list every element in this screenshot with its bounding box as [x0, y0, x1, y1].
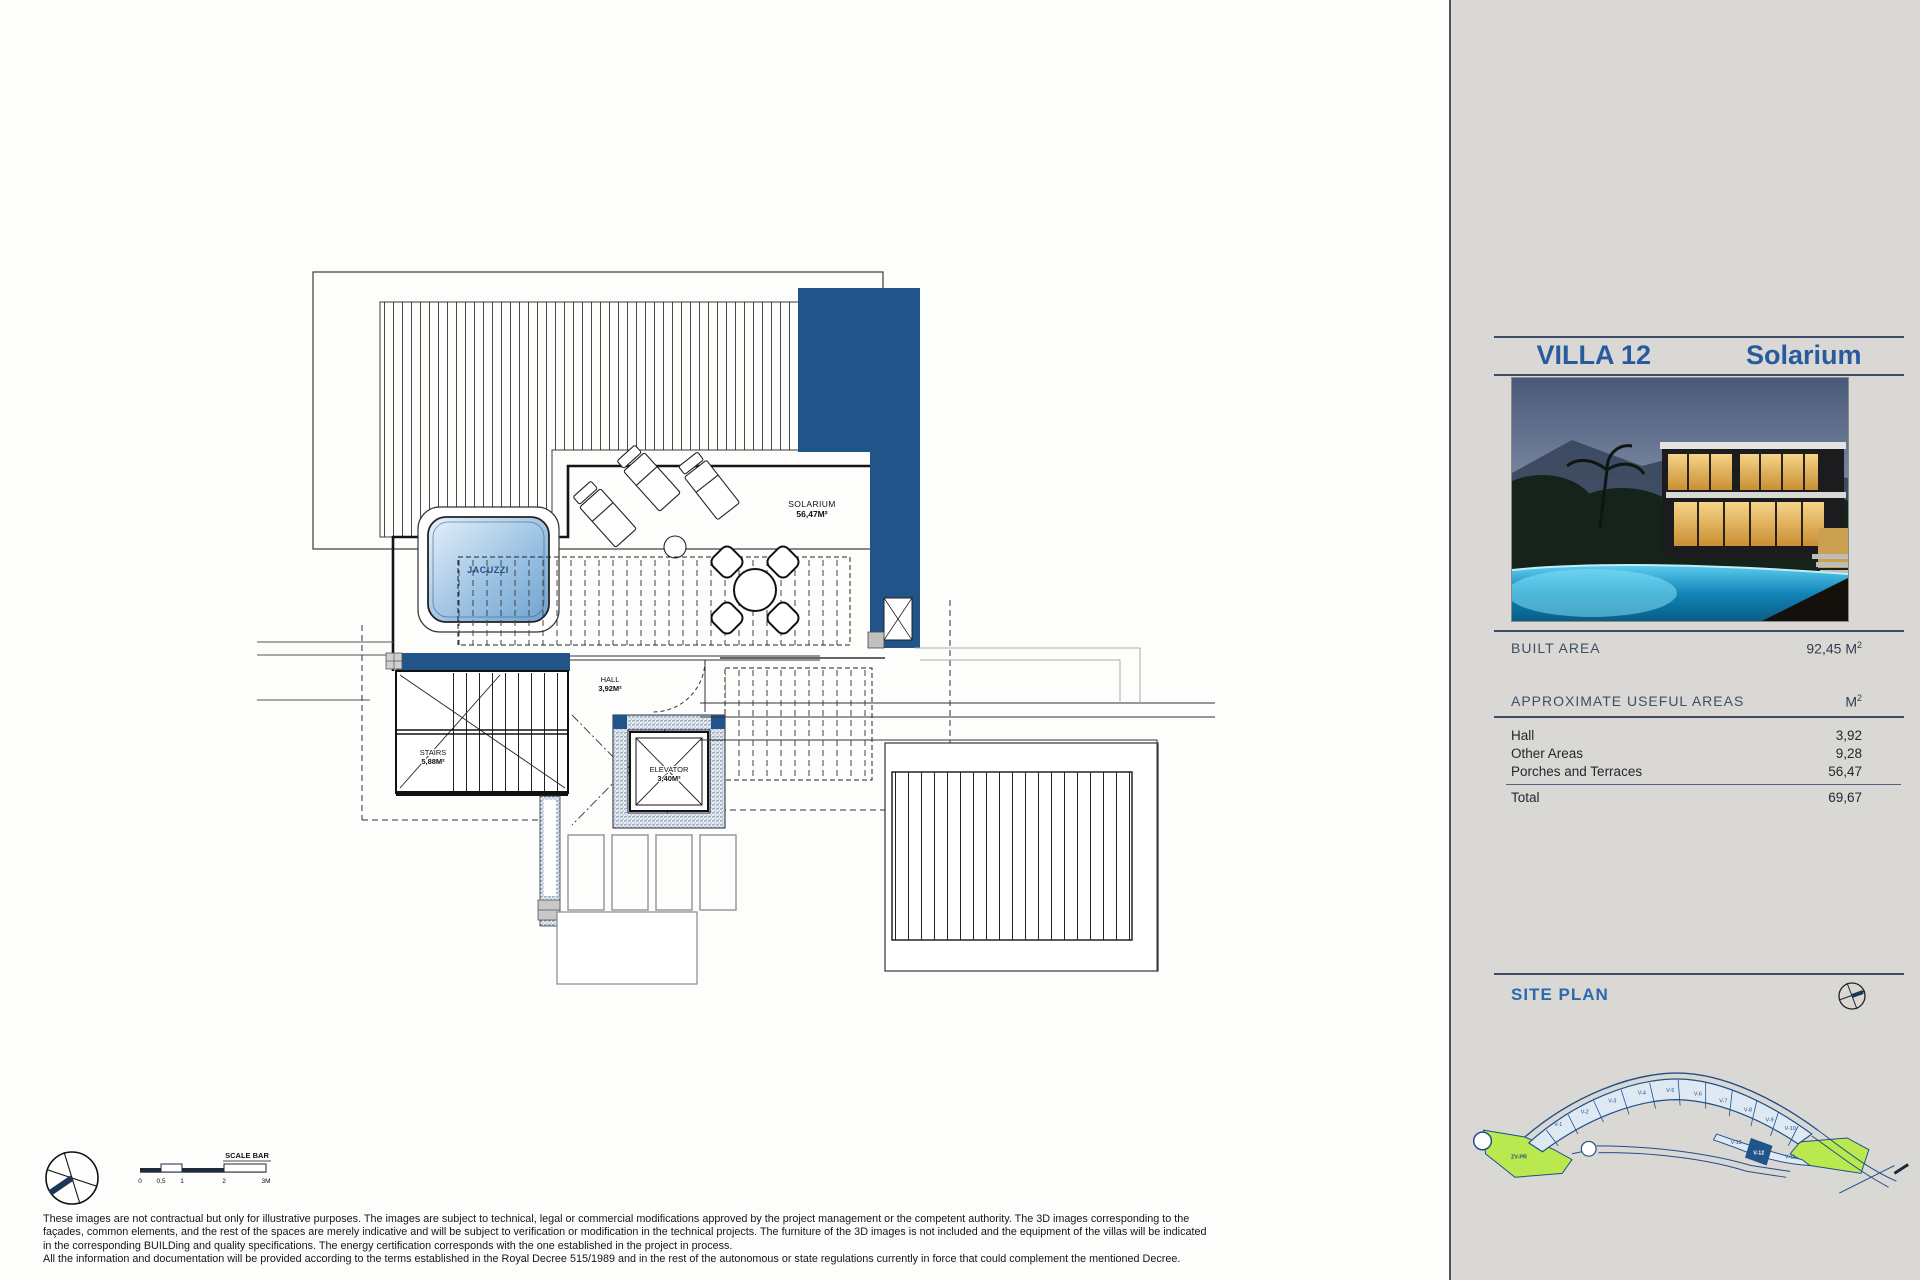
floor-title: Solarium	[1746, 340, 1862, 371]
svg-text:3M: 3M	[261, 1178, 270, 1185]
svg-text:V-2: V-2	[1581, 1109, 1589, 1115]
svg-text:V-8: V-8	[1744, 1107, 1752, 1113]
svg-text:ELEVATOR: ELEVATOR	[650, 765, 689, 774]
svg-text:5,88M²: 5,88M²	[421, 757, 445, 766]
area-row: Hall 3,92	[1511, 728, 1862, 743]
side-table	[664, 536, 686, 558]
divider	[1494, 374, 1904, 376]
villa-photo	[1511, 377, 1849, 622]
elevator: ELEVATOR 3,40M²	[613, 715, 725, 828]
cul-de-sac	[1474, 1132, 1492, 1150]
disclaimer-line: All the information and documentation wi…	[43, 1253, 1443, 1266]
divider	[1494, 630, 1904, 632]
divider	[1506, 784, 1901, 785]
svg-text:SCALE BAR: SCALE BAR	[225, 1151, 269, 1160]
svg-text:V-1: V-1	[1554, 1122, 1562, 1128]
lower-platform	[557, 912, 697, 984]
svg-text:0: 0	[138, 1178, 142, 1185]
svg-text:V-11: V-11	[1785, 1155, 1796, 1161]
svg-text:V-12: V-12	[1753, 1151, 1764, 1157]
scale-bar: SCALE BAR 0 0,5 1 2 3M	[115, 1148, 315, 1198]
disclaimer-line: in the corresponding BUILDing and qualit…	[43, 1240, 1443, 1253]
area-row: Other Areas 9,28	[1511, 746, 1862, 761]
svg-text:V-6: V-6	[1694, 1092, 1702, 1098]
divider	[1494, 336, 1904, 338]
parking-bays	[568, 835, 736, 910]
svg-text:V-10: V-10	[1785, 1126, 1796, 1132]
svg-text:3,40M²: 3,40M²	[657, 774, 681, 783]
divider	[1494, 973, 1904, 975]
stairs: STAIRS 5,88M²	[386, 653, 570, 796]
access-arrow	[1894, 1165, 1908, 1174]
site-plan-title: SITE PLAN	[1511, 985, 1609, 1005]
roundabout	[1581, 1141, 1596, 1156]
built-area-row: BUILT AREA 92,45 M2	[1511, 640, 1862, 657]
brochure-sheet: JACUZZI SOLARIUM 56,47M²	[0, 0, 1920, 1280]
svg-text:V-9: V-9	[1766, 1117, 1774, 1123]
service-box	[868, 632, 884, 648]
built-area-value: 92,45 M2	[1806, 640, 1862, 657]
deck-planks-lower	[725, 668, 872, 780]
info-panel: VILLA 12 Solarium	[1449, 0, 1920, 1280]
useful-areas-header: APPROXIMATE USEFUL AREAS M2	[1511, 693, 1862, 710]
scale-bar-ticks: 0 0,5 1 2 3M	[138, 1178, 270, 1185]
svg-text:56,47M²: 56,47M²	[796, 509, 827, 519]
wall-stub	[538, 796, 560, 926]
svg-text:V-3: V-3	[1608, 1099, 1616, 1105]
villa-building	[1660, 442, 1848, 575]
sun-loungers	[571, 444, 739, 558]
left-boundary-lines	[257, 642, 393, 700]
gray-setback-lines	[915, 648, 1140, 703]
zone-label: ZV-PR	[1511, 1155, 1527, 1161]
svg-text:V-5: V-5	[1666, 1088, 1674, 1094]
useful-areas-label: APPROXIMATE USEFUL AREAS	[1511, 693, 1744, 710]
useful-areas-unit: M2	[1845, 693, 1862, 710]
svg-text:0,5: 0,5	[156, 1178, 165, 1185]
disclaimer-line: These images are not contractual but onl…	[43, 1213, 1443, 1226]
svg-text:STAIRS: STAIRS	[420, 748, 447, 757]
svg-text:HALL: HALL	[601, 675, 620, 684]
floor-plan-drawing: JACUZZI SOLARIUM 56,47M²	[200, 260, 1230, 1000]
legal-disclaimer: These images are not contractual but onl…	[43, 1213, 1443, 1267]
svg-text:V-13: V-13	[1731, 1140, 1742, 1146]
svg-text:V-7: V-7	[1719, 1099, 1727, 1105]
total-row: Total 69,67	[1511, 790, 1862, 805]
panel-header: VILLA 12 Solarium	[1494, 340, 1904, 371]
disclaimer-line: façades, common elements, and the rest o…	[43, 1226, 1443, 1239]
svg-text:3,92M²: 3,92M²	[598, 684, 622, 693]
villa-title: VILLA 12	[1536, 340, 1651, 371]
divider	[1494, 716, 1904, 718]
lower-terrace	[885, 743, 1158, 971]
solarium-label: SOLARIUM 56,47M²	[788, 499, 836, 519]
svg-text:1: 1	[180, 1178, 184, 1185]
svg-text:V-4: V-4	[1638, 1091, 1646, 1097]
built-area-label: BUILT AREA	[1511, 640, 1601, 657]
area-row: Porches and Terraces 56,47	[1511, 764, 1862, 779]
site-plan-drawing: V-1 V-2 V-3 V-4 V-5 V-6 V-7 V-8 V-9 V-10…	[1456, 1042, 1918, 1232]
compass-icon	[1836, 980, 1868, 1012]
north-compass-icon	[40, 1146, 104, 1210]
svg-text:SOLARIUM: SOLARIUM	[788, 499, 836, 509]
svg-text:2: 2	[222, 1178, 226, 1185]
